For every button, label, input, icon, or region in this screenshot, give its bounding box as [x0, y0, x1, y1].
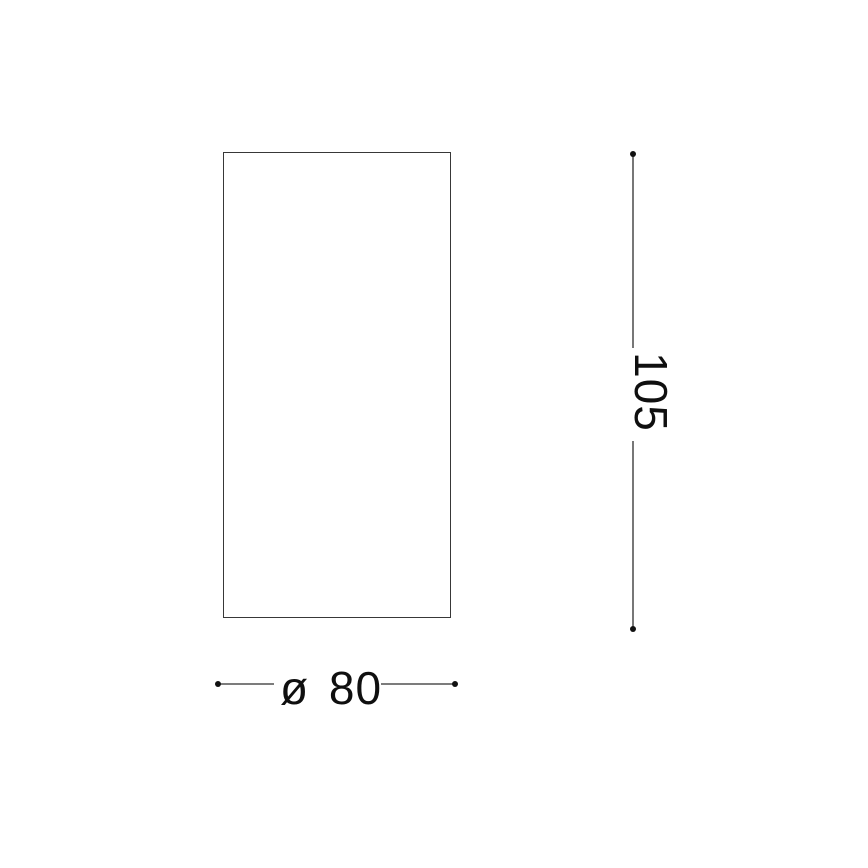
diameter-dimension-endpoint-right-dot [452, 681, 458, 687]
diameter-dimension-label: ø 80 [280, 665, 382, 711]
height-dimension-endpoint-bottom-dot [630, 626, 636, 632]
height-dimension-endpoint-top-dot [630, 151, 636, 157]
dimension-lines-layer [0, 0, 868, 868]
height-dimension-label: 105 [628, 352, 674, 432]
diameter-dimension-endpoint-left-dot [215, 681, 221, 687]
technical-drawing-canvas: 105 ø 80 [0, 0, 868, 868]
